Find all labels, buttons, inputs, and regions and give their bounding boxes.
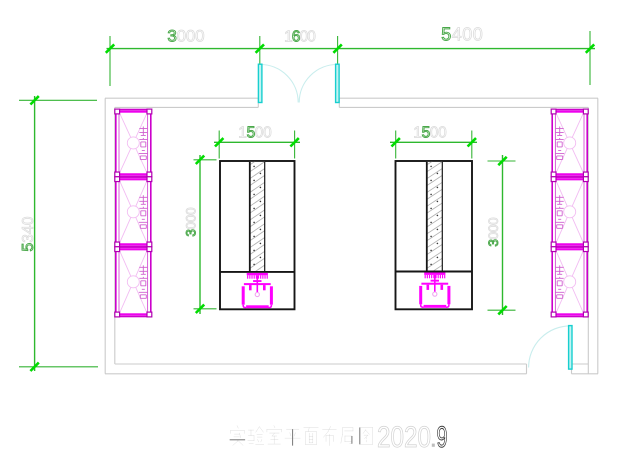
svg-text:2020: 2020 — [377, 421, 431, 454]
svg-text:9: 9 — [437, 421, 448, 454]
svg-text:0: 0 — [473, 25, 483, 45]
svg-text:4: 4 — [452, 25, 462, 45]
svg-text:4: 4 — [20, 225, 37, 234]
svg-text:3: 3 — [167, 27, 176, 46]
svg-text:5: 5 — [441, 25, 451, 45]
svg-text:5: 5 — [20, 243, 37, 252]
svg-text:0: 0 — [263, 124, 272, 141]
svg-text:0: 0 — [177, 27, 186, 46]
svg-text:0: 0 — [438, 124, 447, 141]
svg-text:0: 0 — [307, 29, 316, 46]
svg-text:0: 0 — [195, 27, 204, 46]
svg-text:3: 3 — [20, 234, 37, 243]
svg-text:0: 0 — [186, 27, 195, 46]
svg-text:0: 0 — [486, 217, 501, 225]
svg-text:0: 0 — [20, 216, 37, 225]
svg-text:0: 0 — [462, 25, 472, 45]
svg-text:0: 0 — [184, 207, 199, 215]
